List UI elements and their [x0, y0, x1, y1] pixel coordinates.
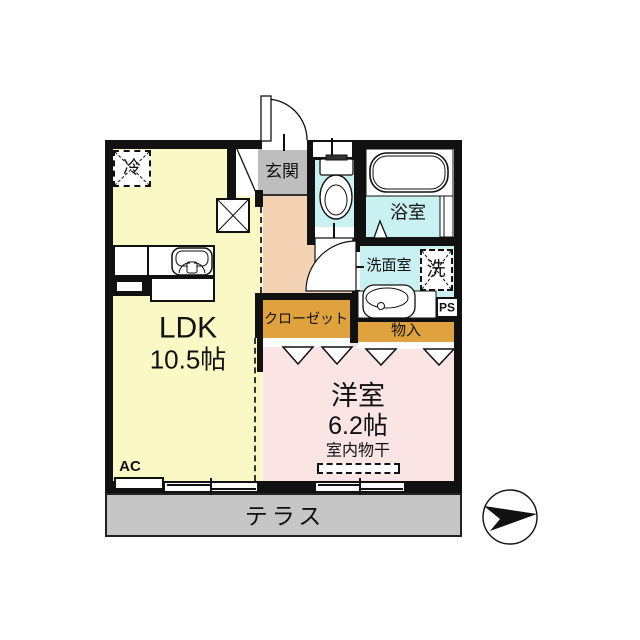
- ac-unit-box: [114, 477, 164, 490]
- closet-label: クローゼット: [264, 312, 348, 327]
- washroom-label: 洗面室: [366, 258, 411, 274]
- shoe-cabinet: [236, 148, 258, 196]
- wall-entrance-left: [227, 148, 236, 198]
- ldk-label: LDK: [159, 312, 217, 344]
- indoor-drying-box: [317, 463, 400, 474]
- kitchen-counter-lower: [150, 277, 215, 302]
- window-western-sash-1: [318, 484, 360, 486]
- pipe-space-label: PS: [439, 302, 455, 315]
- compass-circle: [483, 490, 537, 544]
- bath-label: 浴室: [390, 204, 426, 223]
- floor-plan: 玄関 浴室 洗面室 洗 冷 クローゼット 物入 PS LDK 10.5帖 洋室 …: [0, 0, 640, 640]
- kitchen-counter-divider: [147, 245, 149, 277]
- kitchen-counter: [113, 245, 215, 277]
- sliding-partition-ldk-hall: [260, 207, 262, 293]
- wall-bath-bottom: [352, 237, 462, 246]
- compass-arrow-icon: [484, 506, 537, 531]
- entrance-label: 玄関: [265, 163, 299, 181]
- window-ldk-sash-1: [167, 484, 211, 486]
- entrance-door-leaf: [261, 96, 271, 141]
- toilet-door-tick: [333, 223, 335, 241]
- window-western-tick: [359, 478, 361, 495]
- washroom-label-tick: [346, 266, 364, 268]
- western-room-size-label: 6.2帖: [328, 413, 388, 439]
- hatch-box: [216, 198, 250, 233]
- wall-shoe-stub: [255, 190, 263, 207]
- sliding-partition-ldk-western: [254, 338, 256, 481]
- wall-ldk-western-stub: [257, 338, 263, 372]
- washroom-door-opening: [352, 252, 360, 290]
- terrace-label: テラス: [245, 504, 326, 528]
- wall-closet-left: [255, 300, 263, 338]
- window-ldk-sash-2: [212, 488, 256, 490]
- ac-label: AC: [119, 459, 141, 475]
- indoor-drying-label: 室内物干: [326, 444, 390, 461]
- room-hall-lower: [263, 240, 352, 300]
- ldk-size-label: 10.5帖: [150, 346, 227, 373]
- room-hall-upper: [263, 196, 307, 245]
- entrance-door-arc: [266, 99, 307, 140]
- western-room-label: 洋室: [331, 382, 385, 410]
- washer-label: 洗: [426, 260, 445, 280]
- window-western-sash-2: [361, 488, 403, 490]
- storage-door-track: [358, 342, 454, 349]
- refrigerator-label: 冷: [123, 159, 141, 178]
- window-ldk-tick: [210, 478, 212, 495]
- storage-label: 物入: [391, 323, 421, 339]
- toilet-window-tick: [331, 138, 333, 159]
- wall-closet-top: [255, 293, 358, 300]
- closet-door-track: [263, 338, 350, 347]
- entrance-opening-tick: [283, 134, 285, 151]
- wall-left: [105, 140, 113, 493]
- kitchen-stub-slot: [117, 282, 142, 291]
- room-bath: [366, 149, 453, 237]
